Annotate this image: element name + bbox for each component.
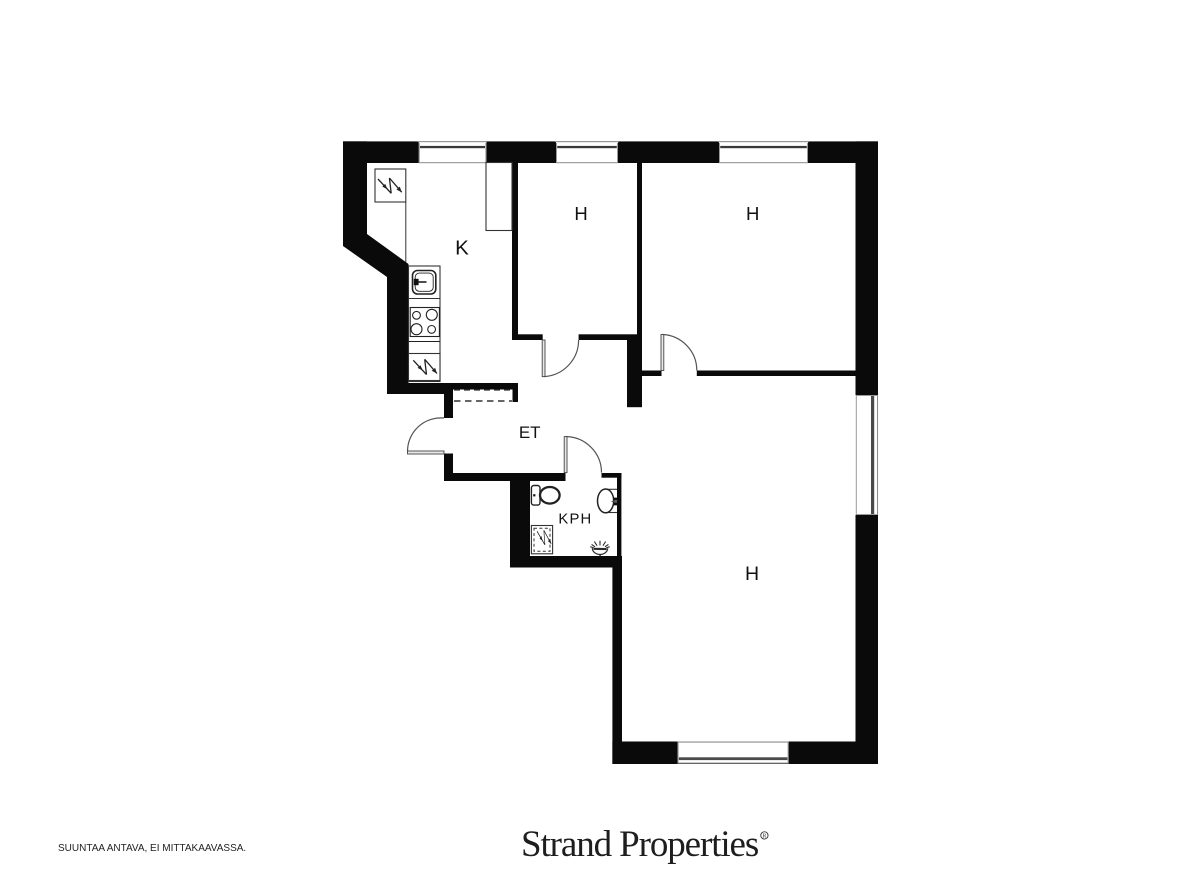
svg-text:R: R (762, 834, 766, 840)
svg-text:SUUNTAA ANTAVA, EI MITTAKAAVAS: SUUNTAA ANTAVA, EI MITTAKAAVASSA. (58, 843, 246, 854)
svg-text:ET: ET (519, 423, 541, 442)
svg-text:Strand Properties: Strand Properties (521, 824, 759, 865)
svg-text:KPH: KPH (558, 512, 592, 528)
svg-text:H: H (574, 203, 587, 224)
svg-text:H: H (745, 563, 759, 585)
svg-text:K: K (455, 236, 469, 259)
svg-text:H: H (746, 203, 759, 224)
